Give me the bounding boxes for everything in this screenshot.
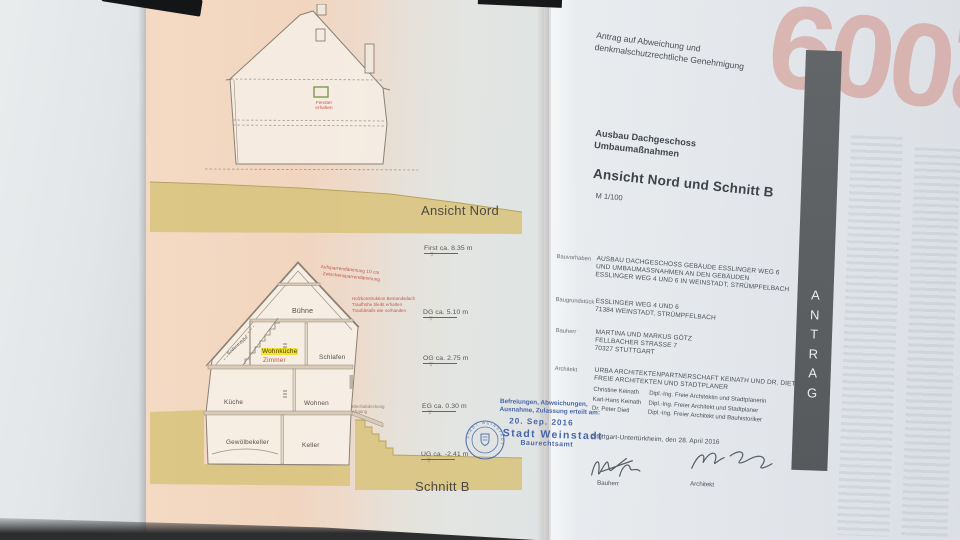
signature-architekt	[687, 444, 776, 482]
side-chimney	[365, 44, 374, 73]
datum-icon: ▽	[430, 252, 434, 258]
section-title: Schnitt B	[415, 479, 470, 494]
level-mark-ug: UG ca. -2.41 m ▽	[421, 451, 469, 460]
elevation-title: Ansicht Nord	[421, 203, 499, 218]
signature-label-bauherr: Bauherr	[597, 480, 619, 488]
underlying-page-left	[0, 0, 153, 540]
level-mark-ridge: First ca. 8.35 m ▽	[424, 245, 472, 254]
elevation-drawing	[150, 4, 522, 236]
level-mark-og: OG ca. 2.75 m ▽	[423, 355, 469, 364]
dg-floor	[208, 365, 353, 369]
house-outline	[230, 11, 387, 164]
level-mark-eg: EG ca. 0.30 m ▽	[422, 403, 467, 412]
ghost-text-column	[837, 135, 903, 537]
collar-beam	[278, 283, 320, 286]
room-label-sleeping: Schlafen	[319, 354, 345, 361]
room-label-attic: Bühne	[292, 308, 313, 315]
room-label-vault-cellar: Gewölbekeller	[226, 439, 269, 446]
signature-label-architekt: Architekt	[690, 480, 714, 488]
datum-icon: ▽	[427, 458, 431, 464]
datum-icon: ▽	[429, 316, 433, 322]
level-mark-dg: DG ca. 5.10 m ▽	[423, 309, 468, 318]
attic-floor	[250, 319, 353, 322]
room-label-kitchen: Küche	[224, 399, 243, 406]
room-label-living: Wohnen	[304, 400, 329, 407]
window-right	[350, 375, 354, 389]
chimney	[317, 4, 326, 15]
photo-of-open-plan-folder: 2009 Fenster erhalten Ansicht Nord	[0, 0, 960, 540]
ghost-text-column	[901, 147, 960, 540]
room-label-room: Zimmer	[263, 357, 286, 364]
room-label-cellar: Keller	[302, 442, 320, 449]
background-year-print: 2009	[830, 0, 960, 151]
exit-note: Blechabdeckung Abgang	[352, 404, 388, 414]
eaves-note-1: Holzkonstruktion Bestandsdach	[352, 296, 415, 301]
datum-icon: ▽	[429, 362, 433, 368]
round-seal: STADT WEINSTADT	[464, 419, 506, 461]
room-label-kitchen-living: Wohnküche	[261, 348, 298, 355]
datum-icon: ▽	[428, 410, 432, 416]
elevation-window-note: Fenster erhalten	[313, 100, 335, 111]
eg-floor	[204, 411, 352, 415]
eaves-note-3: Traufdetails wie vorhanden	[352, 308, 406, 313]
eaves-note-2: Traufhöhe bleibt erhalten	[352, 302, 402, 307]
antrag-tab-letters: A N T R A G	[807, 288, 821, 399]
